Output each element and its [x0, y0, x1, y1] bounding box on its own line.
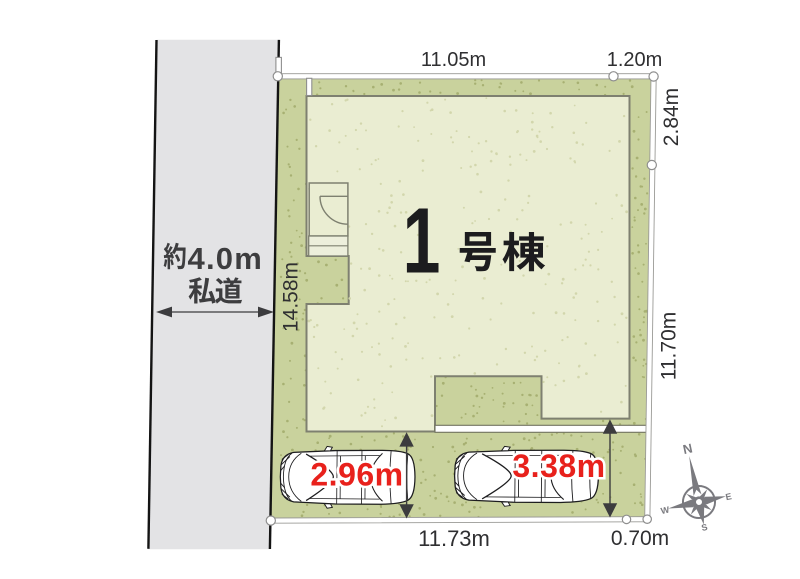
svg-text:4.0m: 4.0m	[188, 241, 263, 276]
svg-text:2.96m: 2.96m	[310, 457, 403, 493]
svg-text:14.58m: 14.58m	[280, 262, 303, 332]
svg-text:1: 1	[403, 189, 441, 293]
svg-text:11.70m: 11.70m	[658, 312, 681, 381]
svg-text:1.20m: 1.20m	[607, 49, 663, 71]
svg-text:11.05m: 11.05m	[421, 49, 486, 71]
svg-text:2.84m: 2.84m	[660, 88, 683, 146]
svg-text:0.70m: 0.70m	[611, 527, 669, 550]
svg-text:3.38m: 3.38m	[512, 448, 605, 484]
svg-text:11.73m: 11.73m	[418, 526, 490, 551]
